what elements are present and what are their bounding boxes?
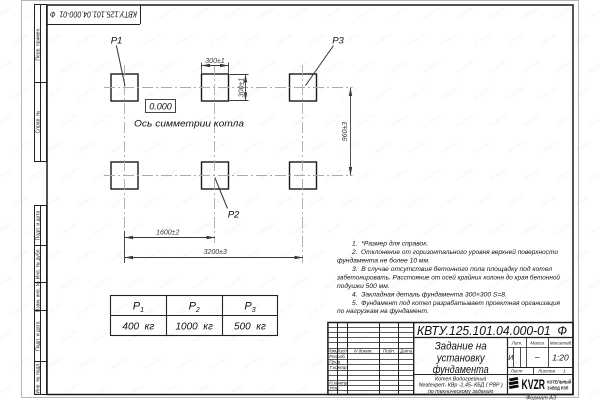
svg-text:Масштаб: Масштаб bbox=[550, 340, 572, 345]
svg-text:Разраб.: Разраб. bbox=[329, 354, 346, 359]
svg-text:P3: P3 bbox=[332, 36, 344, 47]
svg-text:Т.контр.: Т.контр. bbox=[329, 365, 348, 370]
svg-text:Пров.: Пров. bbox=[329, 359, 341, 364]
svg-text:N докум.: N докум. bbox=[354, 349, 373, 354]
svg-text:Справ. №: Справ. № bbox=[36, 111, 42, 134]
svg-text:Задание на: Задание на bbox=[435, 341, 487, 353]
svg-text:КВТУ.125.101.04.000-01 Ф: КВТУ.125.101.04.000-01 Ф bbox=[50, 10, 137, 20]
svg-text:960±3: 960±3 bbox=[342, 122, 349, 142]
svg-text:1600±2: 1600±2 bbox=[156, 229, 179, 236]
svg-text:P2: P2 bbox=[189, 301, 200, 315]
svg-text:Котел Водогрейный: Котел Водогрейный bbox=[435, 376, 486, 383]
svg-text:Лит.: Лит. bbox=[511, 340, 523, 345]
svg-text:Дата: Дата bbox=[399, 349, 413, 354]
svg-text:Ось симметрии котла: Ось симметрии котла bbox=[134, 119, 244, 130]
svg-text:Инв. № дубл.: Инв. № дубл. bbox=[36, 248, 42, 279]
svg-text:по нагрузкам на фундамент.: по нагрузкам на фундамент. bbox=[337, 307, 429, 315]
svg-text:400 кг: 400 кг bbox=[122, 321, 154, 332]
svg-text:подушки 500 мм.: подушки 500 мм. bbox=[337, 282, 390, 290]
svg-text:Инв. № подл.: Инв. № подл. bbox=[36, 362, 42, 393]
svg-text:Neatexpert- КВр -1,45- КБД ( Р: Neatexpert- КВр -1,45- КБД ( РВР ) bbox=[419, 383, 503, 389]
svg-text:ЗАВОД РЭП: ЗАВОД РЭП bbox=[547, 385, 568, 390]
svg-text:500 кг: 500 кг bbox=[234, 321, 266, 332]
svg-text:установку: установку bbox=[436, 353, 486, 365]
svg-text:P3: P3 bbox=[244, 301, 255, 315]
svg-text:Подп.: Подп. bbox=[383, 349, 395, 354]
svg-text:КВТУ.125.101.04.000-01 Ф: КВТУ.125.101.04.000-01 Ф bbox=[417, 324, 567, 338]
svg-text:Масса: Масса bbox=[530, 340, 544, 345]
svg-text:3200±3: 3200±3 bbox=[204, 249, 227, 256]
svg-text:по техническому заданию: по техническому заданию bbox=[428, 389, 493, 395]
svg-text:Утв.: Утв. bbox=[329, 386, 339, 391]
svg-text:1. *Размер для справок.: 1. *Размер для справок. bbox=[352, 240, 428, 248]
svg-text:KVZR: KVZR bbox=[522, 377, 546, 392]
svg-text:0.000: 0.000 bbox=[149, 101, 172, 111]
svg-text:300±1: 300±1 bbox=[205, 58, 225, 65]
svg-text:Лист: Лист bbox=[335, 349, 348, 354]
svg-text:Перв. примен.: Перв. примен. bbox=[36, 27, 42, 60]
svg-text:Формат А3: Формат А3 bbox=[526, 395, 557, 400]
svg-text:P1: P1 bbox=[111, 36, 123, 47]
svg-text:P2: P2 bbox=[228, 210, 240, 221]
svg-text:1000 кг: 1000 кг bbox=[175, 321, 213, 332]
svg-text:КОТЕЛЬНЫЙ: КОТЕЛЬНЫЙ bbox=[547, 377, 571, 384]
svg-text:1:20: 1:20 bbox=[552, 353, 569, 363]
svg-text:P1: P1 bbox=[133, 301, 144, 315]
svg-text:Лист: Лист bbox=[510, 369, 523, 374]
svg-text:Листов: Листов bbox=[537, 369, 555, 374]
svg-text:300±1: 300±1 bbox=[239, 78, 246, 98]
svg-text:Взам. инв. №: Взам. инв. № bbox=[36, 281, 42, 312]
svg-text:–: – bbox=[534, 353, 540, 362]
svg-text:Подп. и дата: Подп. и дата bbox=[36, 321, 42, 351]
svg-text:забетонировать. Расстояние от: забетонировать. Расстояние от осей крайн… bbox=[336, 273, 560, 281]
svg-text:Подп. и дата: Подп. и дата bbox=[36, 211, 42, 241]
svg-text:1: 1 bbox=[563, 369, 566, 375]
svg-text:фундамента: фундамента bbox=[433, 364, 489, 376]
svg-text:2. Отклонение от горизонтальн: 2. Отклонение от горизонтального уровня … bbox=[351, 248, 558, 256]
svg-text:3. В случае отсутствия бетонн: 3. В случае отсутствия бетонного пола пл… bbox=[352, 265, 552, 273]
svg-text:5. Фундамент под котел разраб: 5. Фундамент под котел разрабатывает про… bbox=[352, 299, 560, 307]
svg-text:фундамента не более 10 мм.: фундамента не более 10 мм. bbox=[337, 257, 430, 265]
svg-text:4. Закладная деталь фундамент: 4. Закладная деталь фундамента 300×300 S… bbox=[352, 290, 507, 298]
